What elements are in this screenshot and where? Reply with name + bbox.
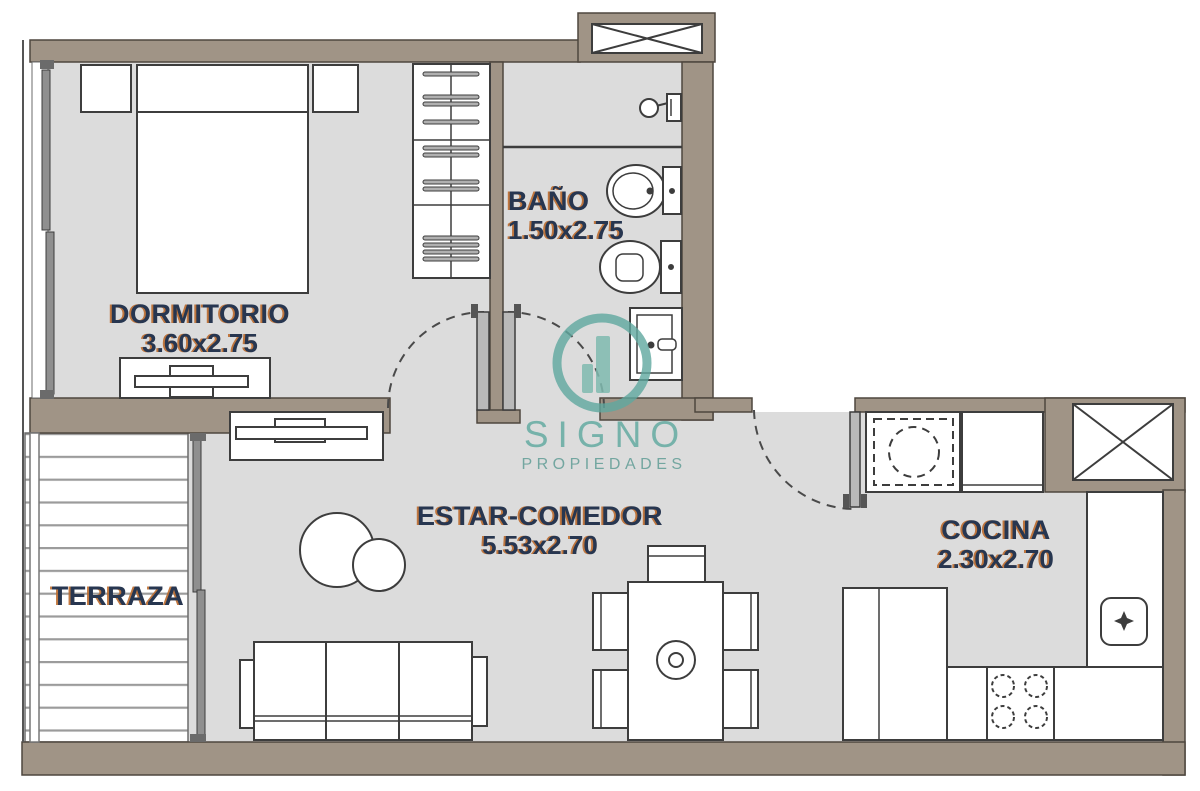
dining-chair-left1 xyxy=(593,593,628,650)
bidet-drain xyxy=(648,189,653,194)
fridge-counter xyxy=(962,412,1043,492)
room-dims-estar-comedor: 5.53x2.70 xyxy=(417,531,663,560)
sofa-body xyxy=(254,642,472,740)
wall-door-cap xyxy=(477,410,520,423)
sideboard-tv-bar xyxy=(236,427,367,439)
room-dims-dormitorio: 3.60x2.75 xyxy=(110,329,290,358)
entry-door-handle-right xyxy=(861,494,867,508)
bedroom-window-cap-top xyxy=(40,60,54,69)
room-label-cocina: COCINA 2.30x2.70 xyxy=(938,515,1054,574)
sofa-armrest-right xyxy=(472,657,487,726)
bathroom-door-handle xyxy=(514,304,521,318)
room-name-estar-comedor: ESTAR-COMEDOR xyxy=(417,501,663,531)
stove-burner-4 xyxy=(1025,706,1047,728)
bathroom-door-leaf xyxy=(503,312,515,410)
wall-bottom xyxy=(22,742,1185,775)
terrace-slider-cap-top xyxy=(190,433,206,441)
room-name-dormitorio: DORMITORIO xyxy=(110,299,290,329)
bedroom-window-pane1 xyxy=(42,70,50,230)
terrace-slider-cap-bottom xyxy=(190,734,206,742)
toilet-tank-dot xyxy=(669,265,673,269)
vanity-drain xyxy=(649,343,654,348)
brand-name: SIGNO xyxy=(524,414,688,456)
dining-chair-right1 xyxy=(723,593,758,650)
wall-bedroom-bathroom xyxy=(490,62,503,412)
coffee-table-small xyxy=(353,539,405,591)
shower-bracket xyxy=(667,94,681,121)
stove-burner-1 xyxy=(992,675,1014,697)
terrace-rail xyxy=(30,433,39,742)
room-dims-bano: 1.50x2.75 xyxy=(508,216,624,245)
table-centerpiece-inner xyxy=(669,653,683,667)
stove-burner-2 xyxy=(1025,675,1047,697)
dining-chair-right2 xyxy=(723,670,758,728)
bidet-tank-dot xyxy=(670,189,674,193)
entry-door-leaf xyxy=(850,412,860,507)
room-label-estar-comedor: ESTAR-COMEDOR 5.53x2.70 xyxy=(417,501,663,560)
bedroom-door-leaf xyxy=(477,312,489,410)
room-name-cocina: COCINA xyxy=(938,515,1054,545)
room-label-terraza: TERRAZA xyxy=(52,581,185,611)
wall-right xyxy=(1163,490,1185,775)
toilet-seat xyxy=(616,254,643,281)
logo-building-bar-short xyxy=(582,364,593,393)
washer-drum-icon xyxy=(889,427,939,477)
brand-tagline: PROPIEDADES xyxy=(521,456,686,474)
sofa-armrest-left xyxy=(240,660,254,728)
bedroom-door-handle xyxy=(471,304,478,318)
floor-plan: DORMITORIO 3.60x2.75 BAÑO 1.50x2.75 ESTA… xyxy=(0,0,1200,791)
nightstand-left xyxy=(81,65,131,112)
wall-entry-left xyxy=(695,398,752,412)
room-name-terraza: TERRAZA xyxy=(52,581,185,611)
bedroom-window-cap-bottom xyxy=(40,390,54,399)
nightstand-right xyxy=(313,65,358,112)
logo-building-bar-tall xyxy=(596,336,610,393)
room-name-bano: BAÑO xyxy=(508,186,624,216)
wall-bathroom-right xyxy=(682,62,713,420)
room-dims-cocina: 2.30x2.70 xyxy=(938,545,1054,574)
floor-plan-canvas xyxy=(0,0,1200,791)
shower-head-icon xyxy=(640,99,658,117)
bedroom-window-pane2 xyxy=(46,232,54,394)
bed xyxy=(137,65,308,293)
stove-burner-3 xyxy=(992,706,1014,728)
vanity-faucet xyxy=(658,339,676,350)
dining-chair-left2 xyxy=(593,670,628,728)
entry-door-handle-left xyxy=(843,494,849,508)
room-label-bano: BAÑO 1.50x2.75 xyxy=(508,186,624,245)
dresser-tv-bar xyxy=(135,376,248,387)
wall-top-main xyxy=(30,40,580,62)
terrace-slider-pane1 xyxy=(193,437,201,592)
kitchen-counter-left xyxy=(843,588,947,740)
terrace-slider-pane2 xyxy=(197,590,205,740)
room-label-dormitorio: DORMITORIO 3.60x2.75 xyxy=(110,299,290,358)
